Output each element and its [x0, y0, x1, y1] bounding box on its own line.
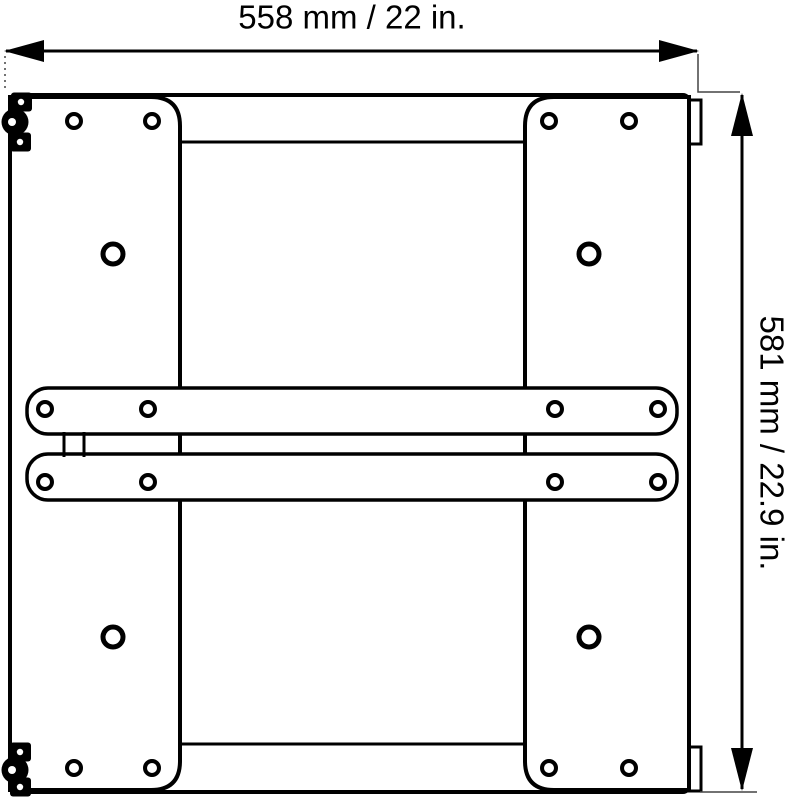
latch-knob-hole [8, 766, 16, 774]
latch-knob-hole [8, 118, 16, 126]
mounting-hole-small [548, 475, 562, 489]
mounting-hole-small [67, 761, 81, 775]
latch-block-hole [17, 784, 23, 790]
mounting-hole-small [141, 475, 155, 489]
latch-block-hole [18, 99, 24, 105]
width-dimension: 558 mm / 22 in. [4, 0, 740, 92]
width-dimension-label: 558 mm / 22 in. [238, 0, 465, 36]
top-crossbar [27, 388, 677, 434]
latch-cluster [2, 743, 32, 797]
mounting-hole-small [38, 475, 52, 489]
left-side-plate [10, 97, 180, 790]
dimension-drawing: 558 mm / 22 in. 581 mm / 22.9 in. [0, 0, 796, 800]
mounting-hole-small [145, 761, 159, 775]
mounting-hole-small [141, 402, 155, 416]
mounting-hole-small [145, 114, 159, 128]
height-dimension: 581 mm / 22.9 in. [700, 93, 791, 792]
plate-body [2, 93, 702, 797]
mounting-hole-small [67, 114, 81, 128]
mounting-hole-small [622, 114, 636, 128]
bottom-crossbar [27, 454, 677, 500]
latch-cluster [2, 93, 33, 152]
height-arrow-up-icon [731, 93, 753, 136]
mounting-hole-small [542, 761, 556, 775]
right-side-plate [525, 97, 689, 790]
height-arrow-down-icon [731, 748, 753, 791]
mounting-hole-small [542, 114, 556, 128]
width-extension-line-right [698, 54, 740, 92]
mounting-hole-small [38, 402, 52, 416]
width-arrow-right-icon [659, 40, 699, 62]
mounting-hole-small [651, 402, 665, 416]
mounting-hole-small [622, 761, 636, 775]
latch-block-hole [17, 139, 23, 145]
drawing-canvas: 558 mm / 22 in. 581 mm / 22.9 in. [0, 0, 796, 800]
mounting-hole-small [651, 475, 665, 489]
mounting-hole-large [579, 627, 599, 647]
latch-block-hole [17, 749, 23, 755]
mounting-hole-large [103, 244, 123, 264]
mounting-hole-large [579, 244, 599, 264]
mounting-hole-large [103, 627, 123, 647]
mounting-hole-small [548, 402, 562, 416]
height-dimension-label: 581 mm / 22.9 in. [754, 316, 791, 571]
width-arrow-left-icon [4, 40, 44, 62]
